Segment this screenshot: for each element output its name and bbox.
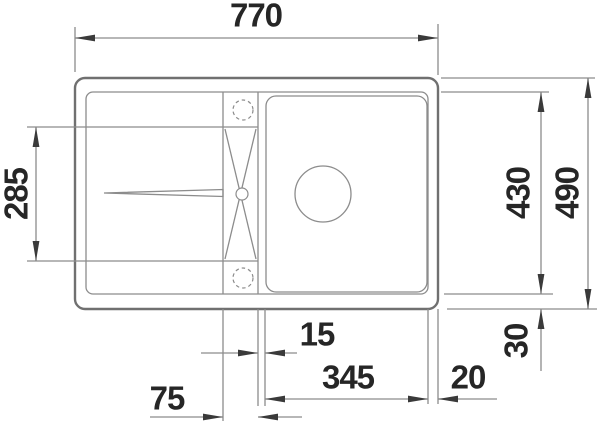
dimension-drainboard-depth: 285	[0, 127, 39, 261]
dimension-label-15: 15	[300, 316, 335, 353]
arrow-left	[438, 396, 458, 403]
arrow-up	[538, 92, 545, 112]
sink-dimension-diagram: 770 285 430 490 30	[0, 0, 600, 427]
arrow-right	[238, 350, 258, 357]
arrow-right	[418, 35, 438, 42]
dimension-overall-width: 770	[75, 0, 438, 75]
arrow-left	[265, 350, 285, 357]
dimension-label-770: 770	[230, 0, 282, 34]
arrow-up	[585, 78, 592, 98]
arrow-left	[258, 414, 278, 421]
drawing-canvas: 770 285 430 490 30	[0, 0, 600, 427]
dimension-label-285: 285	[0, 167, 35, 220]
arrow-left	[75, 35, 95, 42]
dimension-bowl-width: 345	[265, 359, 428, 403]
arrow-up	[538, 309, 545, 329]
divider-center-hole	[236, 188, 248, 200]
dimension-rear-rim: 30	[498, 309, 545, 371]
dimension-divider-width: 15	[201, 316, 335, 357]
arrow-down	[538, 274, 545, 294]
arrow-down	[33, 241, 40, 261]
dimension-label-490: 490	[549, 167, 586, 219]
dimension-inner-depth: 430	[441, 92, 553, 294]
arrow-up	[33, 127, 40, 147]
arrow-down	[585, 289, 592, 309]
arrow-right	[203, 414, 223, 421]
arrow-left	[265, 396, 285, 403]
dimension-label-75: 75	[150, 380, 185, 417]
dimension-right-rim: 20	[438, 359, 497, 403]
arrow-right	[408, 396, 428, 403]
dimension-label-345: 345	[322, 359, 375, 396]
dimension-label-430: 430	[500, 167, 537, 219]
dimension-label-20: 20	[451, 359, 486, 396]
sink-body	[27, 78, 438, 309]
dimension-label-30: 30	[498, 324, 535, 359]
